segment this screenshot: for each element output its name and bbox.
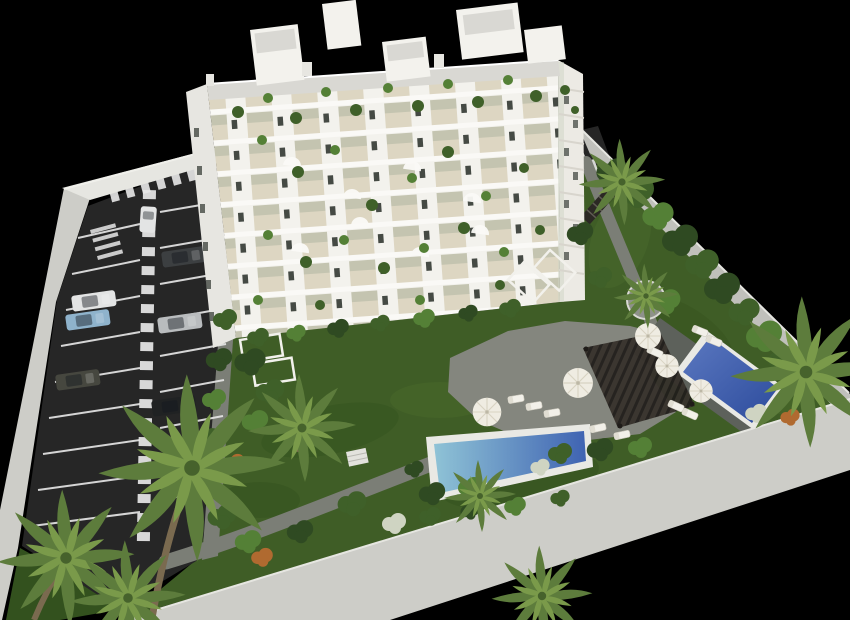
roof-vent bbox=[206, 74, 214, 86]
roof-vent bbox=[434, 54, 444, 68]
parasol bbox=[473, 398, 502, 427]
car-white-entrance bbox=[139, 206, 157, 233]
roof-vent bbox=[302, 62, 312, 76]
parasol bbox=[563, 368, 593, 398]
render-canvas bbox=[0, 0, 850, 620]
scene-render bbox=[0, 0, 850, 620]
parasol bbox=[655, 354, 678, 377]
parasol bbox=[689, 379, 712, 402]
